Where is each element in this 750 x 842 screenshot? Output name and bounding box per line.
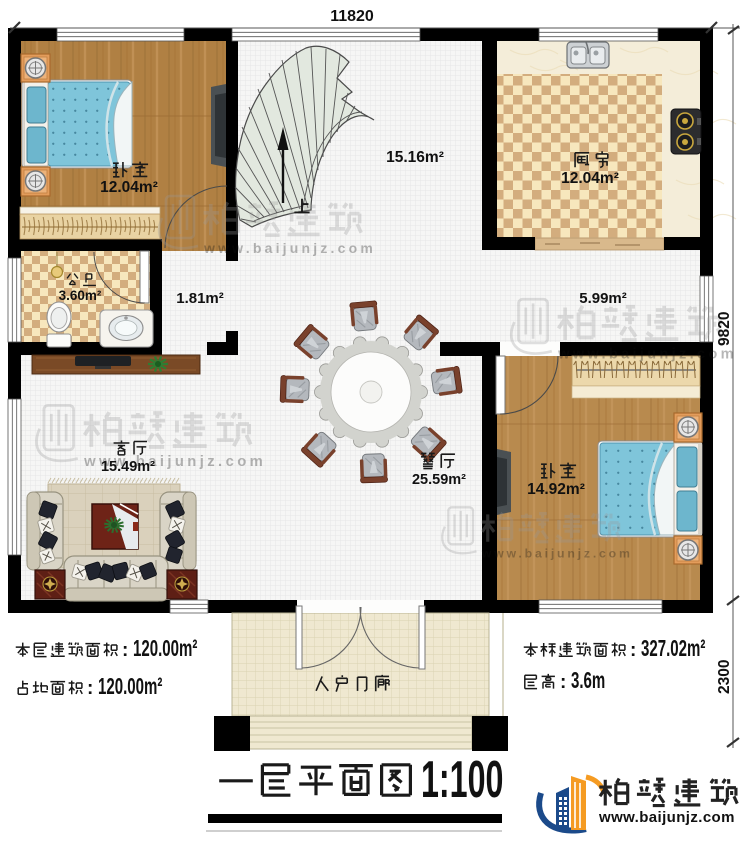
svg-text:www.baijunjz.com: www.baijunjz.com [598, 809, 735, 826]
svg-text::: : [560, 672, 566, 693]
svg-text:3.60m²: 3.60m² [59, 288, 102, 303]
svg-text:www.baijunjz.com: www.baijunjz.com [203, 240, 376, 256]
svg-text:120.00m²: 120.00m² [98, 674, 163, 700]
svg-text:11820: 11820 [330, 8, 374, 25]
svg-text:1:100: 1:100 [421, 751, 503, 809]
svg-text:327.02m²: 327.02m² [641, 636, 706, 662]
svg-text:www.baijunjz.com: www.baijunjz.com [557, 347, 737, 363]
svg-text:2300: 2300 [716, 660, 733, 694]
svg-text:15.49m²: 15.49m² [101, 459, 155, 475]
svg-text:12.04m²: 12.04m² [561, 170, 619, 187]
svg-text:25.59m²: 25.59m² [412, 472, 466, 488]
svg-text:www.baijunjz.com: www.baijunjz.com [481, 546, 633, 560]
svg-text:120.00m²: 120.00m² [133, 636, 198, 662]
svg-text::: : [122, 640, 128, 661]
svg-text:14.92m²: 14.92m² [527, 481, 585, 498]
svg-text:9820: 9820 [716, 312, 733, 346]
svg-text:1.81m²: 1.81m² [176, 290, 224, 307]
svg-text::: : [87, 678, 93, 699]
svg-text:3.6m: 3.6m [571, 668, 605, 694]
svg-text:15.16m²: 15.16m² [386, 149, 444, 166]
svg-text:12.04m²: 12.04m² [100, 179, 158, 196]
svg-text:5.99m²: 5.99m² [579, 290, 627, 307]
svg-text::: : [630, 640, 636, 661]
